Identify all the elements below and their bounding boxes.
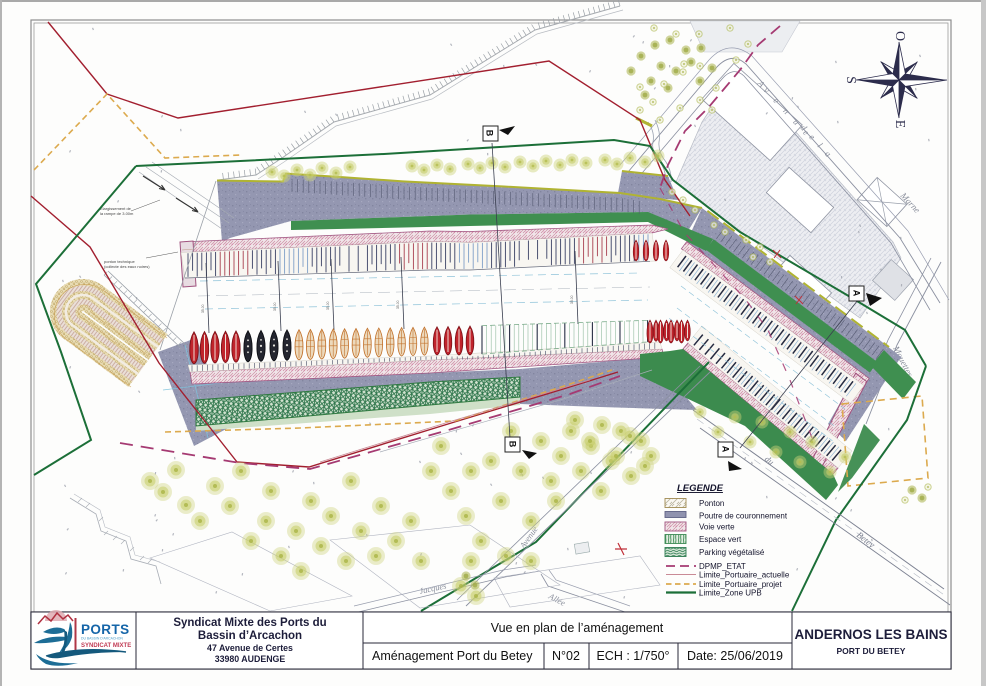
svg-text:A: A: [852, 290, 862, 297]
svg-text:Espace vert: Espace vert: [699, 535, 742, 544]
svg-text:S: S: [843, 76, 858, 84]
svg-text:ECH : 1/750°: ECH : 1/750°: [596, 649, 669, 663]
svg-text:ANDERNOS LES BAINS: ANDERNOS LES BAINS: [794, 627, 947, 642]
svg-text:Date: 25/06/2019: Date: 25/06/2019: [687, 649, 783, 663]
svg-text:Limite_Portuaire_actuelle: Limite_Portuaire_actuelle: [699, 571, 790, 580]
svg-text:Aménagement Port du Betey: Aménagement Port du Betey: [372, 649, 533, 663]
svg-text:35.00: 35.00: [396, 300, 400, 309]
svg-text:(collecte des eaux noires): (collecte des eaux noires): [104, 264, 150, 269]
svg-text:Voie verte: Voie verte: [699, 523, 735, 532]
svg-text:35.00: 35.00: [201, 304, 205, 313]
svg-text:PORTS: PORTS: [81, 622, 130, 637]
svg-text:A: A: [721, 446, 731, 453]
svg-text:B: B: [508, 441, 518, 448]
svg-text:Parking végétalisé: Parking végétalisé: [699, 548, 765, 557]
svg-text:O: O: [892, 31, 907, 41]
svg-text:Poutre de couronnement: Poutre de couronnement: [699, 512, 788, 521]
svg-text:LEGENDE: LEGENDE: [677, 483, 724, 494]
svg-text:Limite_Zone UPB: Limite_Zone UPB: [699, 589, 762, 598]
svg-text:Ponton: Ponton: [699, 499, 724, 508]
svg-text:E: E: [892, 120, 907, 129]
svg-text:47 Avenue de Certes: 47 Avenue de Certes: [207, 643, 293, 653]
svg-text:Bassin d’Arcachon: Bassin d’Arcachon: [198, 630, 302, 642]
svg-text:PORT DU BETEY: PORT DU BETEY: [837, 646, 906, 656]
svg-text:Syndicat Mixte des Ports du: Syndicat Mixte des Ports du: [173, 617, 326, 629]
svg-text:la rampe de 3.00m: la rampe de 3.00m: [100, 211, 134, 216]
svg-text:35.00: 35.00: [273, 302, 277, 311]
svg-text:33980 AUDENGE: 33980 AUDENGE: [215, 654, 286, 664]
svg-text:Vue en plan de l’aménagement: Vue en plan de l’aménagement: [491, 621, 664, 635]
svg-text:35.00: 35.00: [326, 301, 330, 310]
svg-text:35.00: 35.00: [570, 295, 574, 304]
svg-text:N°02: N°02: [552, 649, 580, 663]
svg-text:B: B: [485, 130, 495, 137]
svg-text:SYNDICAT MIXTE: SYNDICAT MIXTE: [81, 643, 131, 649]
svg-text:DU BASSIN D’ARCACHON: DU BASSIN D’ARCACHON: [81, 637, 123, 641]
